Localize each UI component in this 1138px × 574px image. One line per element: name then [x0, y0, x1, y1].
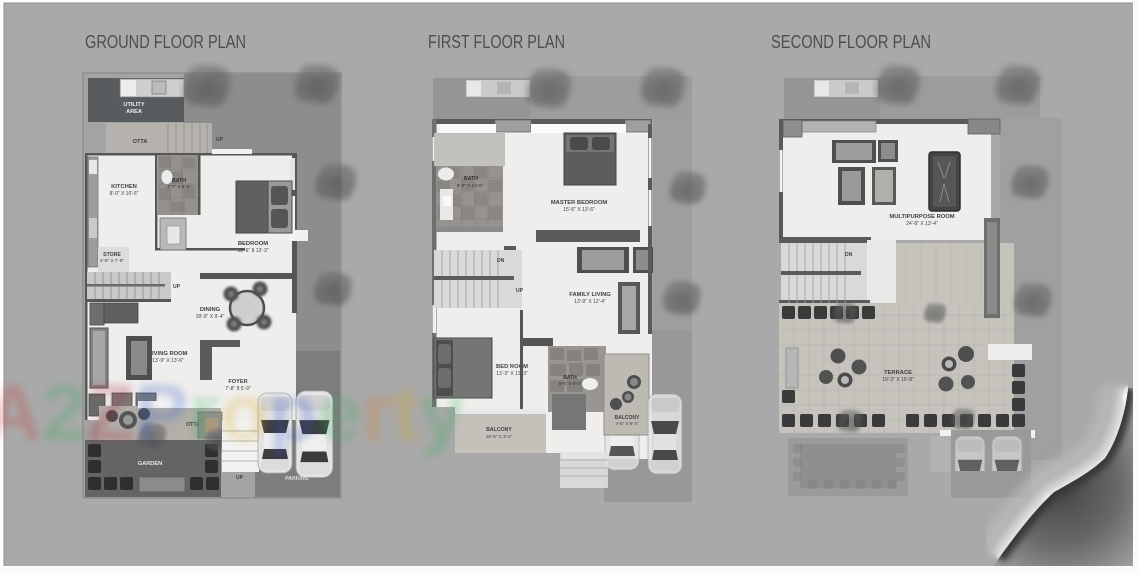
- svg-text:18'-6" X 3'-4": 18'-6" X 3'-4": [486, 434, 513, 439]
- svg-text:8'-0" X 13'-6": 8'-0" X 13'-6": [457, 183, 484, 188]
- svg-text:5'-6" X 9'-0": 5'-6" X 9'-0": [559, 381, 582, 386]
- svg-text:19'-3" X 15'-8": 19'-3" X 15'-8": [882, 377, 914, 383]
- svg-text:GROUND FLOOR PLAN: GROUND FLOOR PLAN: [85, 32, 246, 52]
- svg-text:MULTIPURPOSE ROOM: MULTIPURPOSE ROOM: [889, 214, 954, 220]
- svg-text:UP: UP: [216, 137, 224, 143]
- svg-text:4'-6" X 7'-8": 4'-6" X 7'-8": [100, 258, 124, 263]
- svg-text:OTTA: OTTA: [133, 139, 148, 145]
- svg-text:UTILITY: UTILITY: [123, 102, 144, 108]
- svg-text:4'-6" X 9'-3": 4'-6" X 9'-3": [616, 421, 639, 426]
- svg-text:GARDEN: GARDEN: [138, 461, 162, 467]
- svg-text:13'-9" X 12'-4": 13'-9" X 12'-4": [574, 299, 606, 305]
- svg-text:BEDROOM: BEDROOM: [238, 241, 268, 247]
- svg-text:8'-0" X 10'-6": 8'-0" X 10'-6": [110, 191, 139, 197]
- svg-text:TERRACE: TERRACE: [884, 370, 912, 376]
- svg-text:DN: DN: [497, 258, 505, 264]
- svg-text:MASTER BEDROOM: MASTER BEDROOM: [551, 200, 608, 206]
- svg-text:15'-6" X 13'-6": 15'-6" X 13'-6": [563, 207, 595, 213]
- svg-text:24'-8" X 13'-4": 24'-8" X 13'-4": [906, 221, 938, 227]
- svg-text:4'-7" X 6'-5": 4'-7" X 6'-5": [167, 184, 191, 189]
- svg-text:DN: DN: [845, 252, 853, 258]
- svg-text:SECOND FLOOR PLAN: SECOND FLOOR PLAN: [771, 32, 931, 52]
- svg-text:PARKING: PARKING: [285, 476, 309, 482]
- svg-text:18'-9" X 9'-4": 18'-9" X 9'-4": [196, 314, 225, 320]
- svg-text:AREA: AREA: [126, 109, 142, 115]
- svg-text:18'-6" 8 13'-3": 18'-6" 8 13'-3": [237, 248, 268, 254]
- svg-text:13'-3" X 13'-3": 13'-3" X 13'-3": [496, 371, 528, 377]
- svg-text:LIVING ROOM: LIVING ROOM: [149, 351, 188, 357]
- svg-text:FAMILY LIVING: FAMILY LIVING: [569, 292, 611, 298]
- svg-text:UP: UP: [173, 284, 181, 290]
- svg-text:UP: UP: [516, 288, 524, 294]
- svg-text:UP: UP: [236, 475, 244, 481]
- svg-text:13'-9" X 13'-6": 13'-9" X 13'-6": [152, 358, 184, 364]
- svg-text:A2ZProperty: A2ZProperty: [0, 368, 465, 457]
- svg-text:BALCONY: BALCONY: [486, 427, 512, 433]
- svg-text:FIRST FLOOR PLAN: FIRST FLOOR PLAN: [428, 32, 565, 52]
- svg-text:DINING: DINING: [200, 307, 221, 313]
- svg-text:BED ROOM: BED ROOM: [496, 364, 528, 370]
- svg-text:KITCHEN: KITCHEN: [111, 184, 137, 190]
- svg-text:BATH: BATH: [464, 176, 478, 182]
